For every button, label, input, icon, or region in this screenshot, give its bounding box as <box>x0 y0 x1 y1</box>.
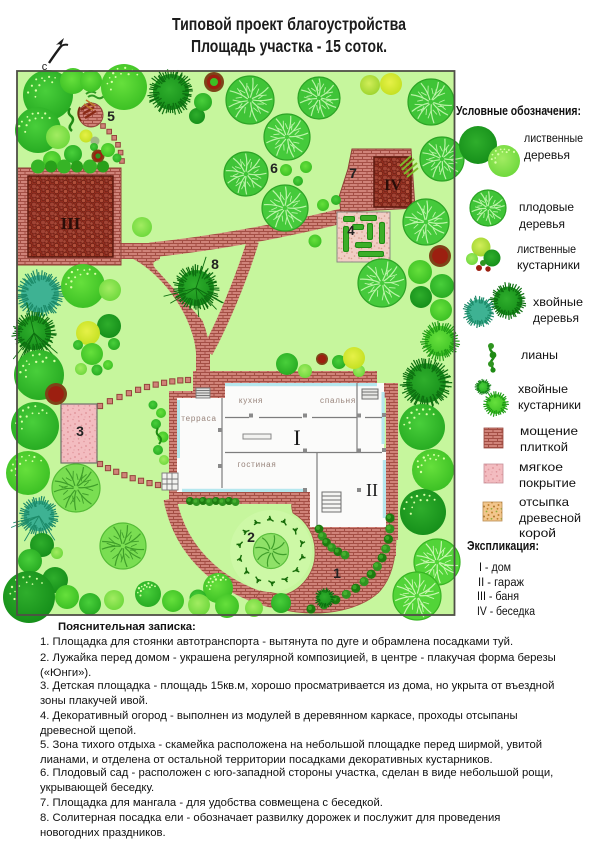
svg-text:лиственные: лиственные <box>524 131 583 145</box>
svg-text:новогодних праздников.: новогодних праздников. <box>40 827 166 839</box>
svg-text:6. Плодовый сад - расположен с: 6. Плодовый сад - расположен с юго-запад… <box>40 767 553 779</box>
svg-text:8: 8 <box>211 256 219 272</box>
svg-text:3: 3 <box>76 423 84 439</box>
svg-text:деревья: деревья <box>519 217 565 231</box>
svg-text:древесной: древесной <box>519 511 581 525</box>
svg-text:хвойные: хвойные <box>533 295 583 309</box>
svg-text:корой: корой <box>519 526 556 540</box>
svg-text:мягкое: мягкое <box>519 460 563 474</box>
svg-text:8. Солитерная посадка ели - об: 8. Солитерная посадка ели - обозначает р… <box>40 812 500 824</box>
svg-text:Площадь участка - 15 соток.: Площадь участка - 15 соток. <box>191 36 387 56</box>
svg-text:II: II <box>366 480 378 500</box>
svg-text:укрывающей беседку.: укрывающей беседку. <box>40 782 154 794</box>
svg-text:лианы: лианы <box>521 348 558 362</box>
svg-text:хвойные: хвойные <box>518 382 568 396</box>
svg-text:(«Юнги»).: («Юнги»). <box>40 667 91 679</box>
svg-text:Условные обозначения:: Условные обозначения: <box>456 104 581 118</box>
svg-text:деревья: деревья <box>524 148 570 162</box>
svg-text:кустарники: кустарники <box>518 398 581 412</box>
svg-text:5. Зона тихого отдыха - скамей: 5. Зона тихого отдыха - скамейка располо… <box>40 739 542 751</box>
svg-text:7: 7 <box>349 165 357 181</box>
svg-text:II - гараж: II - гараж <box>478 575 525 589</box>
svg-text:плиткой: плиткой <box>520 440 568 454</box>
svg-text:6: 6 <box>270 160 278 176</box>
svg-text:5: 5 <box>107 108 115 124</box>
svg-text:III: III <box>61 214 81 233</box>
svg-text:отсыпка: отсыпка <box>519 495 569 509</box>
svg-text:покрытие: покрытие <box>519 476 576 490</box>
svg-text:Пояснительная записка:: Пояснительная записка: <box>58 621 196 633</box>
svg-text:2. Лужайка перед домом - укра: 2. Лужайка перед домом - украшена регуля… <box>40 652 556 664</box>
svg-text:Экспликация:: Экспликация: <box>467 539 539 553</box>
svg-text:4: 4 <box>347 223 355 238</box>
svg-text:1: 1 <box>333 565 341 581</box>
svg-text:спальня: спальня <box>320 396 356 405</box>
svg-text:I - дом: I - дом <box>479 560 511 574</box>
svg-text:с: с <box>42 61 48 73</box>
svg-text:2: 2 <box>247 529 255 545</box>
svg-text:гостиная: гостиная <box>238 460 277 469</box>
svg-text:IV: IV <box>384 177 402 194</box>
svg-text:IV - беседка: IV - беседка <box>477 604 535 618</box>
svg-text:древесной щепой.: древесной щепой. <box>40 725 136 737</box>
svg-text:1. Площадка для стоянки автотр: 1. Площадка для стоянки автотранспорта -… <box>40 636 513 648</box>
svg-text:зоны плакучей ивой.: зоны плакучей ивой. <box>40 695 148 707</box>
svg-text:мощение: мощение <box>520 424 578 438</box>
svg-text:кухня: кухня <box>239 396 263 405</box>
svg-text:4. Декоративный огород - выпол: 4. Декоративный огород - выполнен из мод… <box>40 710 518 722</box>
svg-text:кустарники: кустарники <box>517 258 580 272</box>
svg-text:терраса: терраса <box>181 414 216 423</box>
svg-text:7. Площадка для мангала - для: 7. Площадка для мангала - для удобства с… <box>40 797 383 809</box>
svg-text:лианами, и отделена от остальн: лианами, и отделена от остальной террито… <box>40 754 493 766</box>
svg-text:лиственные: лиственные <box>517 242 576 256</box>
svg-text:плодовые: плодовые <box>519 200 574 214</box>
svg-text:3. Детская площадка - площадь: 3. Детская площадка - площадь 15кв.м, хо… <box>40 680 555 692</box>
svg-text:III - баня: III - баня <box>477 589 519 603</box>
svg-text:Типовой проект благоустройства: Типовой проект благоустройства <box>172 14 406 34</box>
svg-text:деревья: деревья <box>533 311 579 325</box>
svg-text:I: I <box>293 425 300 450</box>
